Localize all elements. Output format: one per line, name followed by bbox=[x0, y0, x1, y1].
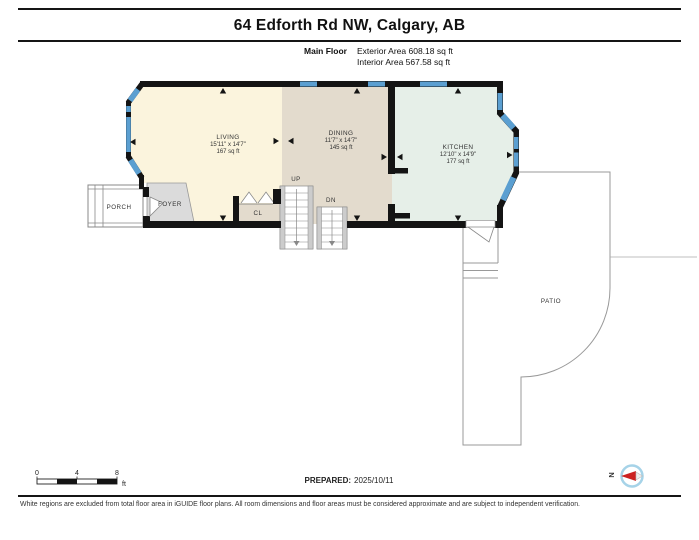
dining-room-name: DINING bbox=[329, 130, 354, 137]
down-label: DN bbox=[326, 197, 336, 204]
living-room-area: 167 sq ft bbox=[216, 149, 239, 155]
footer-divider bbox=[18, 495, 681, 497]
svg-text:8: 8 bbox=[115, 470, 119, 477]
foyer-label: FOYER bbox=[158, 201, 182, 208]
porch-label: PORCH bbox=[107, 204, 132, 211]
living-room-name: LIVING bbox=[216, 134, 239, 141]
compass: N bbox=[607, 466, 643, 487]
floorplan-drawing: LIVING 15'11" x 14'7" 167 sq ft DINING 1… bbox=[0, 0, 699, 540]
patio-door-icon bbox=[466, 221, 495, 243]
kitchen-dimensions: 12'10" x 14'9" bbox=[440, 152, 476, 158]
prepared-date: PREPARED:2025/10/11 bbox=[305, 476, 395, 485]
north-label: N bbox=[607, 472, 616, 477]
patio-label: PATIO bbox=[541, 298, 561, 305]
floorplan-page: 64 Edforth Rd NW, Calgary, AB Main Floor… bbox=[0, 0, 699, 540]
kitchen-name: KITCHEN bbox=[443, 144, 474, 151]
closet-label: CL bbox=[254, 210, 263, 217]
dining-room-area: 145 sq ft bbox=[329, 145, 352, 151]
stairs-up bbox=[280, 186, 313, 249]
svg-text:ft: ft bbox=[122, 481, 126, 488]
svg-text:4: 4 bbox=[75, 470, 79, 477]
kitchen-area: 177 sq ft bbox=[446, 159, 469, 165]
dining-room-dimensions: 11'7" x 14'7" bbox=[325, 138, 357, 144]
living-room-dimensions: 15'11" x 14'7" bbox=[210, 142, 246, 148]
disclaimer-text: White regions are excluded from total fl… bbox=[20, 501, 682, 508]
scale-bar: 0 4 8 ft bbox=[35, 470, 126, 488]
up-label: UP bbox=[291, 176, 301, 183]
svg-text:0: 0 bbox=[35, 470, 39, 477]
stairs-down bbox=[317, 207, 347, 249]
